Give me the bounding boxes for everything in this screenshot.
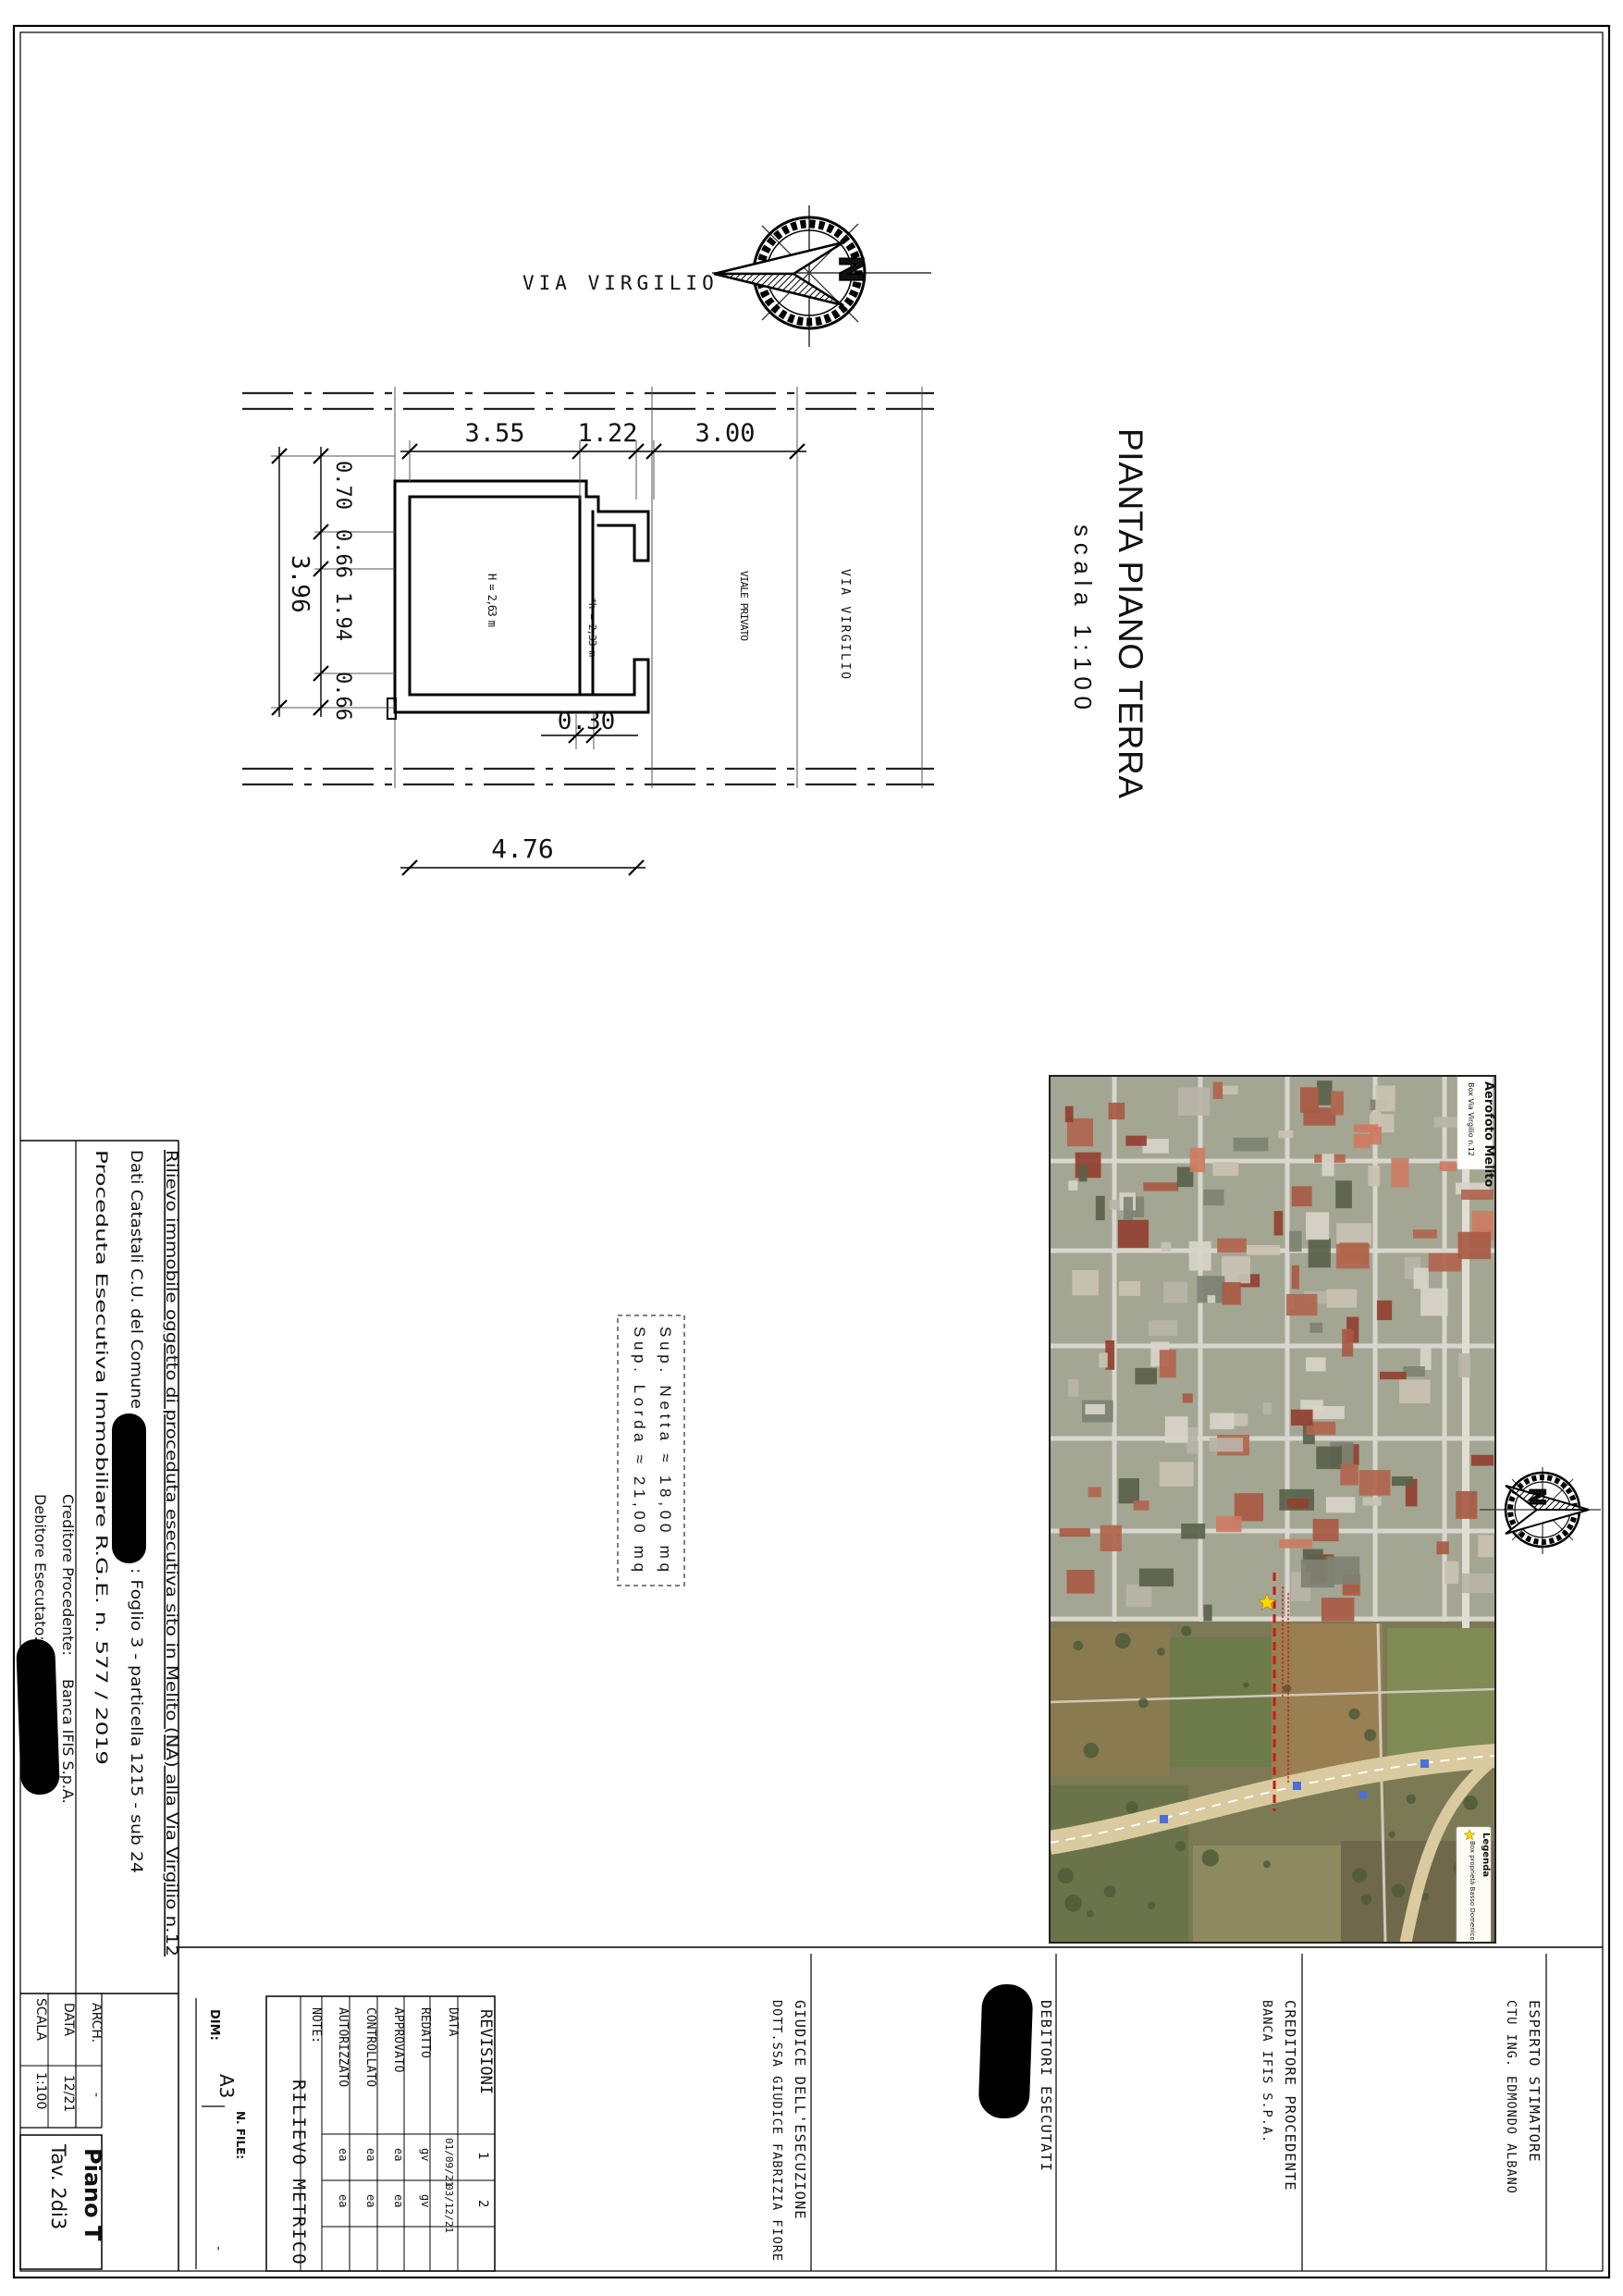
room-height-label: H = 2,63 m <box>486 574 498 627</box>
dim-label: DIM: <box>207 2009 221 2041</box>
file-label: N. FILE: <box>234 2111 247 2159</box>
rev-controllato-1: ea <box>364 2148 377 2161</box>
rev-row-approvato: APPROVATO <box>391 2007 405 2073</box>
rev-row-autorizzato: AUTORIZZATO <box>336 2007 350 2087</box>
floor-plan: H = 2,63 m *h = 2,33 m VIALE PRIVATO VIA… <box>242 387 934 875</box>
sup-netta: Sup. Netta ≈ 18,00 mq <box>657 1327 674 1572</box>
map-legend-card: Legenda Box proprietà Basso Domenico <box>1457 1827 1491 1944</box>
piano-label: Piano T <box>80 2148 105 2241</box>
esperto-name: CTU ING. EDMONDO ALBANO <box>1504 2000 1518 2194</box>
north-letter: N <box>831 255 869 283</box>
scala-label: SCALA <box>33 1998 48 2041</box>
sheet-svg: VIA VIRGILIO N <box>0 0 1623 2296</box>
esperto-title: ESPERTO STIMATORE <box>1526 2000 1543 2163</box>
rev-row-data: DATA <box>446 2007 460 2036</box>
rev-row-controllato: CONTROLLATO <box>363 2007 377 2087</box>
rev-row-redatto: REDATTO <box>418 2007 432 2058</box>
surface-box: Sup. Netta ≈ 18,00 mq Sup. Lorda ≈ 21,00… <box>618 1315 684 1586</box>
data-label: DATA <box>61 2003 76 2036</box>
plan-walls <box>387 481 648 719</box>
map-card-subtitle: Box Via Virgilio n.12 <box>1467 1082 1475 1156</box>
legend-item: Box proprietà Basso Domenico <box>1469 1841 1476 1941</box>
legend-title: Legenda <box>1481 1833 1491 1877</box>
tavola-label: Tav. 2di3 <box>47 2143 69 2229</box>
dim-box: DIM: A3 N. FILE: - <box>196 1998 247 2269</box>
dim-194: 1.94 <box>331 592 354 641</box>
drawing-sheet: VIA VIRGILIO N <box>0 0 1623 2296</box>
rev-data-2: 03/12/21 <box>443 2184 455 2233</box>
dim-066a: 0.66 <box>331 529 354 578</box>
revision-col-2: 2 <box>475 2200 490 2207</box>
sheet-name: RILIEVO METRICO <box>289 2080 309 2266</box>
map-north-letter: N <box>1524 1487 1550 1506</box>
dim-122: 1.22 <box>577 419 637 448</box>
creditore-label: Creditore Procedente: <box>59 1494 77 1656</box>
redaction-blob-comune <box>112 1413 146 1563</box>
rev-redatto-1: gv <box>419 2148 432 2161</box>
arch-value: - <box>89 2092 104 2097</box>
rev-redatto-2: gv <box>419 2194 432 2207</box>
viale-privato-label: VIALE PRIVATO <box>738 571 750 643</box>
note-line2-post: : Foglio 3 - particella 1215 - sub 24 <box>128 1568 145 1873</box>
dimension-left: 0.70 0.66 1.94 0.66 3.96 <box>271 447 395 721</box>
dim-355: 3.55 <box>464 419 524 448</box>
dim-300: 3.00 <box>695 419 755 448</box>
rev-controllato-2: ea <box>364 2194 377 2207</box>
dim-396: 3.96 <box>286 555 314 613</box>
revisions-title: REVISIONI <box>476 2009 495 2094</box>
rev-autorizzato-2: ea <box>337 2194 350 2207</box>
file-value: - <box>211 2246 226 2251</box>
note-line1: Rilievo immobile oggetto di proceduta es… <box>163 1150 180 1957</box>
rev-autorizzato-1: ea <box>337 2148 350 2161</box>
creditore-value: Banca IFIS S.p.A. <box>59 1679 77 1804</box>
dim-value: A3 <box>215 2074 238 2098</box>
north-compass-icon: N <box>712 205 931 347</box>
tav-box: Piano T Tav. 2di3 <box>20 2135 105 2269</box>
plan-title: PIANTA PIANO TERRA <box>1112 428 1150 798</box>
aerial-map: Aerofoto Melito Box Via Virgilio n.12 Le… <box>1050 1075 1513 1944</box>
map-north-compass-icon: N <box>1480 1467 1601 1554</box>
redaction-blob-debitori <box>977 1983 1033 2119</box>
debitori-title: DEBITORI ESECUTATI <box>1038 2000 1054 2172</box>
dim-030: 0.30 <box>558 708 616 735</box>
creditore-title: CREDITORE PROCEDENTE <box>1282 2000 1298 2191</box>
scala-value: 1:100 <box>33 2072 48 2109</box>
via-virgilio-vertical-label: VIA VIRGILIO <box>838 569 852 682</box>
data-value: 12/21 <box>61 2075 76 2112</box>
creditore-name: BANCA IFIS S.P.A. <box>1260 2000 1274 2143</box>
dimension-partition: 0.30 <box>541 708 638 749</box>
note-line3: Proceduta Esecutiva Immobiliare R.G.E. n… <box>92 1150 110 1765</box>
opening-height-label: *h = 2,33 m <box>586 598 598 657</box>
dimension-bottom: 4.76 <box>400 833 646 875</box>
debitore-label: Debitore Esecutato: <box>31 1494 49 1641</box>
rev-data-1: 01/09/21 <box>443 2138 455 2187</box>
sup-lorda: Sup. Lorda ≈ 21,00 mq <box>631 1327 648 1572</box>
rev-row-note: NOTE: <box>309 2007 323 2043</box>
dimension-top: 3.55 1.22 3.00 <box>400 419 806 500</box>
revision-col-1: 1 <box>475 2152 490 2159</box>
dim-476: 4.76 <box>491 833 553 864</box>
note-line2-pre: Dati Catastali C.U. del Comune <box>128 1150 145 1409</box>
rev-approvato-1: ea <box>392 2148 405 2161</box>
map-card-title: Aerofoto Melito <box>1482 1081 1495 1187</box>
rev-approvato-2: ea <box>392 2194 405 2207</box>
giudice-name: DOTT.SSA GIUDICE FABRIZIA FIORE <box>769 2000 784 2262</box>
info-table: ARCH. - DATA 12/21 SCALA 1:100 <box>20 1994 104 2128</box>
dim-066b: 0.66 <box>331 672 354 721</box>
dim-070: 0.70 <box>331 461 354 510</box>
arch-label: ARCH. <box>89 2003 104 2043</box>
street-label-top: VIA VIRGILIO <box>523 272 719 294</box>
revisions-table: REVISIONI 1 2 DATA 01/09/21 03/12/21 RED… <box>266 1996 495 2271</box>
plan-scale: scala 1:100 <box>1069 525 1097 710</box>
giudice-title: GIUDICE DELL'ESECUZIONE <box>792 2000 808 2220</box>
redaction-blob-debitore <box>16 1638 60 1795</box>
